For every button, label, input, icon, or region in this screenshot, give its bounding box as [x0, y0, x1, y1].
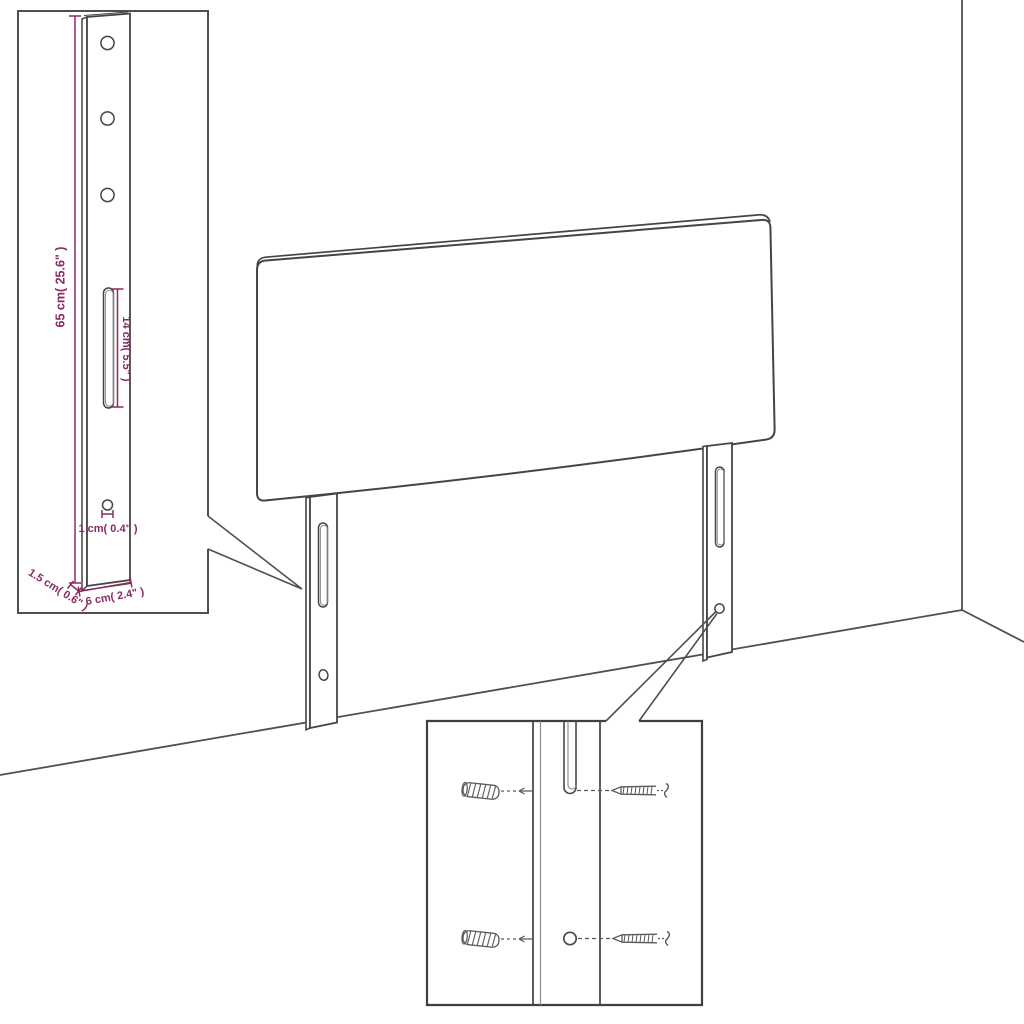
assembly-diagram: 65 cm( 25.6" ) 14 cm( 5.5" ) 1 cm( 0.4" …: [0, 0, 1024, 1024]
floor-line-left: [0, 610, 962, 775]
plug-bottom-leader-arrow: [519, 936, 533, 942]
wall-plug-bottom-icon: [461, 930, 499, 948]
headboard: [257, 215, 775, 501]
plug-top-leader-arrow: [519, 788, 533, 794]
leg-depth-label: 1.5 cm( 0.6" ): [26, 567, 90, 613]
left-leg: [306, 494, 337, 730]
wall-plug-top-icon: [461, 782, 499, 800]
callout-wedge-left: [208, 516, 302, 589]
detail-mount-hole-2: [101, 112, 114, 125]
slot-length-label: 14 cm( 5.5" ): [120, 316, 132, 381]
screw-bottom-icon: [613, 932, 669, 946]
left-leg-slot: [319, 523, 328, 607]
floor-line-right: [962, 610, 1024, 642]
callout-wedge-right: [606, 612, 717, 722]
detail-mount-hole-3: [101, 188, 114, 201]
mounting-leg-strip: [533, 721, 600, 1005]
detail-small-hole: [103, 500, 113, 510]
detail-mount-hole-1: [101, 36, 114, 49]
right-leg-screw-hole: [715, 604, 724, 613]
screw-top-icon: [612, 784, 668, 798]
headboard-panel: [257, 220, 775, 501]
leg-detail-drawing: [82, 12, 130, 591]
leg-strip-slot-inner-line: [568, 721, 576, 789]
leg-strip-slot: [564, 721, 576, 794]
leg-height-label: 65 cm( 25.6" ): [53, 247, 67, 328]
right-leg-slot: [716, 467, 725, 547]
mounting-detail-inset: [427, 612, 717, 1006]
leg-strip-hole: [564, 932, 576, 944]
hole-diameter-label: 1 cm( 0.4" ): [78, 523, 137, 535]
right-leg: [703, 443, 732, 661]
dimension-leg-height: [69, 16, 81, 583]
diagram-page: 65 cm( 25.6" ) 14 cm( 5.5" ) 1 cm( 0.4" …: [0, 0, 1024, 1024]
